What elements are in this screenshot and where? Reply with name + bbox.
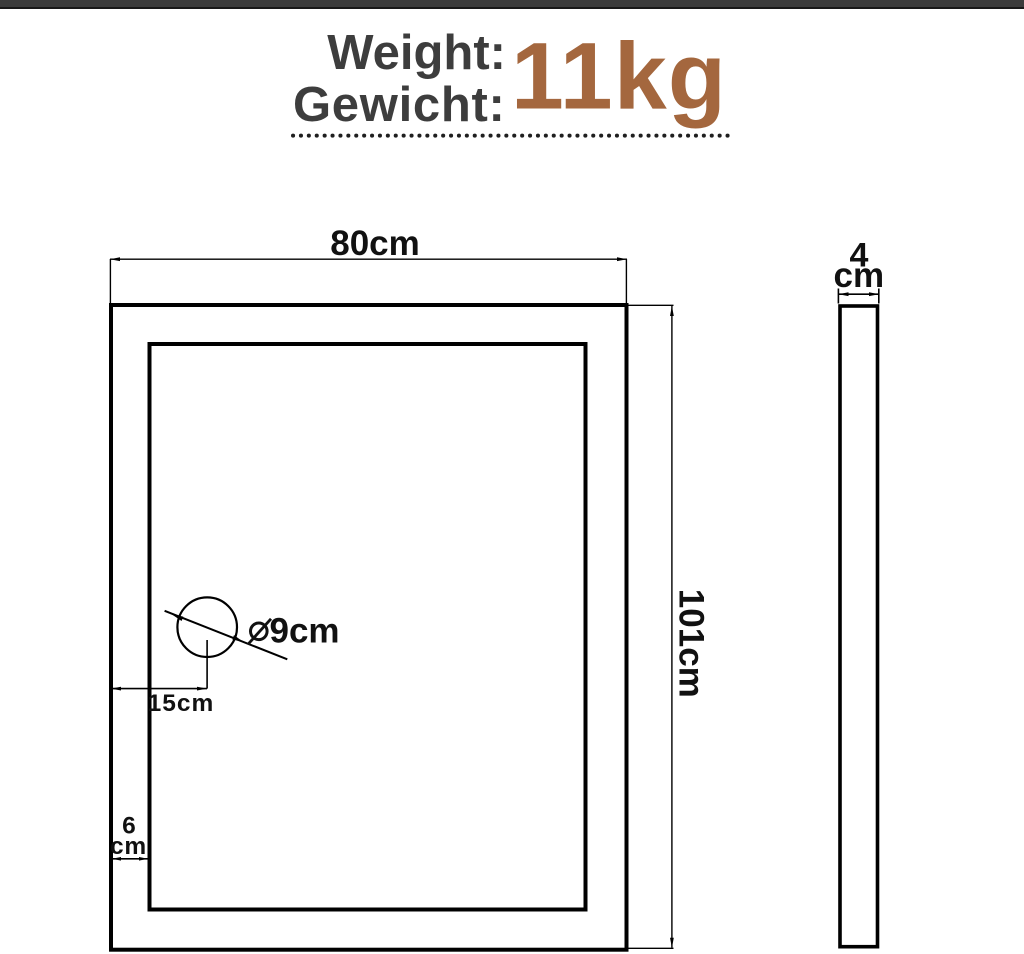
svg-text:cm: cm <box>834 256 885 295</box>
svg-text:9cm: 9cm <box>270 611 340 650</box>
svg-text:11kg: 11kg <box>511 24 727 130</box>
svg-text:Weight:: Weight: <box>327 26 506 80</box>
svg-text:Gewicht:: Gewicht: <box>293 78 506 132</box>
svg-text:cm: cm <box>110 833 147 860</box>
svg-text:101cm: 101cm <box>672 589 711 698</box>
svg-text:80cm: 80cm <box>330 224 420 263</box>
svg-text:15cm: 15cm <box>148 690 215 717</box>
